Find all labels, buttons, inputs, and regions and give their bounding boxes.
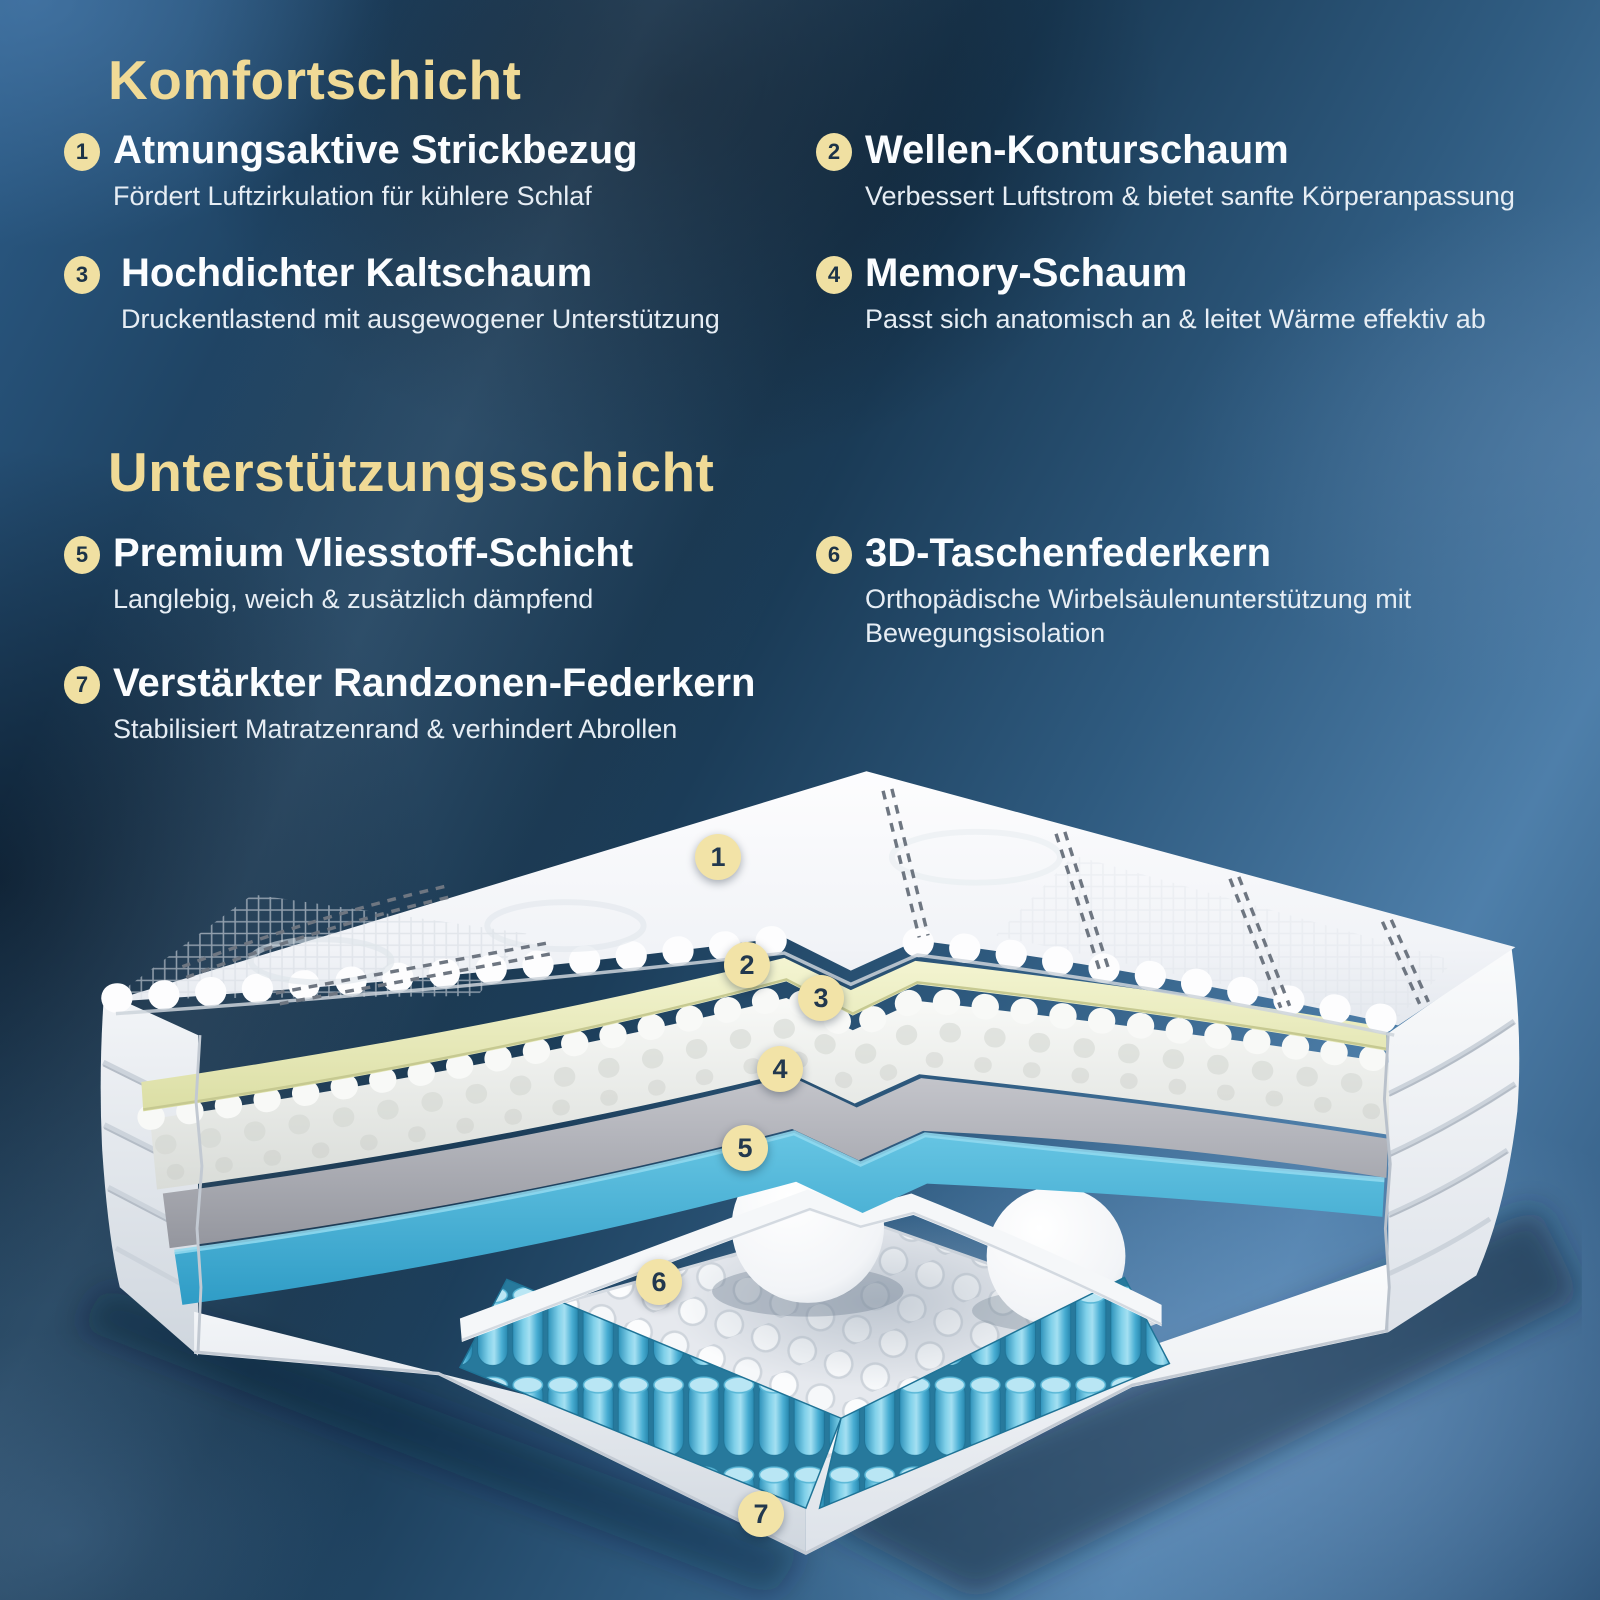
- number-badge-3: 3: [64, 256, 100, 294]
- feature-title: Memory-Schaum: [865, 250, 1486, 296]
- mattress-cutaway-illustration: [0, 740, 1600, 1600]
- feature-description: Fördert Luftzirkulation für kühlere Schl…: [113, 180, 638, 214]
- feature-title: Hochdichter Kaltschaum: [121, 250, 720, 296]
- feature-item-edge-springs: 7 Verstärkter Randzonen-Federkern Stabil…: [64, 660, 824, 747]
- feature-title: 3D-Taschenfederkern: [865, 530, 1416, 576]
- number-badge-6: 6: [816, 536, 852, 574]
- infographic-page: { "sections": [ { "title": "Komfortschic…: [0, 0, 1600, 1600]
- diagram-marker-3: 3: [798, 975, 844, 1021]
- feature-item-fleece-layer: 5 Premium Vliesstoff-Schicht Langlebig, …: [64, 530, 784, 617]
- feature-description: Passt sich anatomisch an & leitet Wärme …: [865, 303, 1486, 337]
- feature-item-knit-cover: 1 Atmungsaktive Strickbezug Fördert Luft…: [64, 127, 784, 214]
- diagram-marker-2: 2: [724, 942, 770, 988]
- diagram-marker-1: 1: [695, 834, 741, 880]
- feature-description: Orthopädische Wirbelsäulenunterstützung …: [865, 583, 1416, 651]
- feature-description: Langlebig, weich & zusätzlich dämpfend: [113, 583, 633, 617]
- feature-title: Atmungsaktive Strickbezug: [113, 127, 638, 173]
- diagram-marker-6: 6: [636, 1259, 682, 1305]
- feature-description: Druckentlastend mit ausgewogener Unterst…: [121, 303, 720, 337]
- diagram-marker-5: 5: [722, 1125, 768, 1171]
- section-title-comfort-layer: Komfortschicht: [108, 48, 521, 112]
- diagram-marker-7: 7: [738, 1491, 784, 1537]
- number-badge-7: 7: [64, 666, 100, 704]
- number-badge-1: 1: [64, 133, 100, 171]
- number-badge-5: 5: [64, 536, 100, 574]
- diagram-marker-4: 4: [757, 1046, 803, 1092]
- feature-title: Wellen-Konturschaum: [865, 127, 1515, 173]
- number-badge-4: 4: [816, 256, 852, 294]
- feature-item-cold-foam: 3 Hochdichter Kaltschaum Druckentlastend…: [64, 250, 784, 337]
- feature-item-memory-foam: 4 Memory-Schaum Passt sich anatomisch an…: [816, 250, 1576, 337]
- feature-item-pocket-springs: 6 3D-Taschenfederkern Orthopädische Wirb…: [816, 530, 1416, 651]
- section-title-support-layer: Unterstützungsschicht: [108, 440, 714, 504]
- feature-title: Verstärkter Randzonen-Federkern: [113, 660, 755, 706]
- feature-item-wave-foam: 2 Wellen-Konturschaum Verbessert Luftstr…: [816, 127, 1576, 214]
- feature-title: Premium Vliesstoff-Schicht: [113, 530, 633, 576]
- number-badge-2: 2: [816, 133, 852, 171]
- feature-description: Verbessert Luftstrom & bietet sanfte Kör…: [865, 180, 1515, 214]
